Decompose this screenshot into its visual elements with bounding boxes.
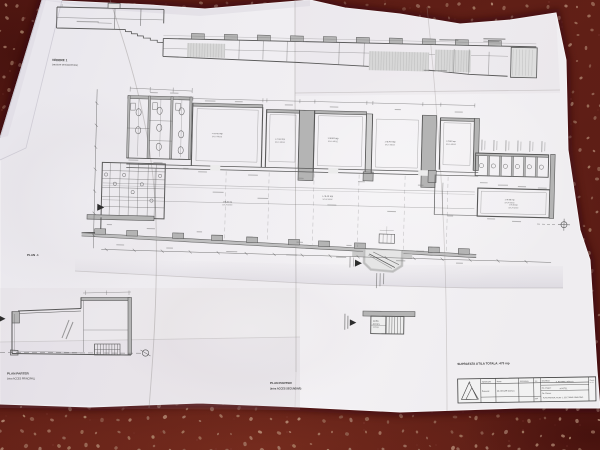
- svg-text:Specificatie: Specificatie: [482, 380, 491, 383]
- svg-text:Plansa: Plansa: [590, 380, 595, 382]
- svg-text:VEDERE 1: VEDERE 1: [52, 58, 68, 62]
- svg-text:178.40 mp: 178.40 mp: [212, 133, 224, 135]
- svg-text:178.40 mp: 178.40 mp: [384, 141, 396, 143]
- svg-text:Beneficiar:: Beneficiar:: [542, 380, 551, 382]
- svg-text:12.6mp: 12.6mp: [373, 327, 379, 329]
- svg-text:178.40 mp: 178.40 mp: [275, 139, 286, 141]
- svg-text:(intra ACCES SECUNDAR): (intra ACCES SECUNDAR): [270, 388, 301, 391]
- svg-text:Ms. ROGER Ionescu: Ms. ROGER Ionescu: [497, 390, 515, 392]
- svg-text:(intra ACCES PRINCIPAL): (intra ACCES PRINCIPAL): [7, 378, 35, 381]
- svg-text:GURA: GURA: [373, 320, 379, 323]
- svg-text:SALA MESE: SALA MESE: [275, 141, 286, 144]
- svg-text:SALA MESE: SALA MESE: [446, 143, 457, 146]
- svg-text:Proiectat: Proiectat: [482, 390, 490, 393]
- svg-text:Semnatura: Semnatura: [520, 380, 529, 383]
- svg-text:Ob. Proiect:: Ob. Proiect:: [542, 387, 552, 390]
- svg-text:178.40 mp: 178.40 mp: [446, 141, 456, 143]
- svg-text:178.40 mp: 178.40 mp: [223, 201, 233, 203]
- svg-text:Nume: Nume: [497, 381, 502, 383]
- svg-text:SALA MESE: SALA MESE: [212, 135, 223, 138]
- svg-text:Ob. Plansa:: Ob. Plansa:: [542, 393, 552, 395]
- svg-text:2016: 2016: [535, 398, 539, 400]
- svg-text:178.40 mp: 178.40 mp: [505, 199, 516, 201]
- svg-text:PLAN PARTER: PLAN PARTER: [270, 381, 293, 385]
- svg-text:SALA MESE: SALA MESE: [222, 203, 233, 206]
- svg-text:ACCES: ACCES: [373, 323, 381, 326]
- svg-text:SALA MESE: SALA MESE: [385, 143, 396, 146]
- svg-text:SALA MESE: SALA MESE: [322, 198, 333, 201]
- svg-text:SUPRAFATA UTILA TOTALA: 473 mp: SUPRAFATA UTILA TOTALA: 473 mp: [457, 361, 509, 366]
- svg-text:SALA MESE: SALA MESE: [328, 140, 339, 143]
- svg-text:HOSTEL: HOSTEL: [560, 388, 568, 390]
- svg-text:178.40 mp: 178.40 mp: [328, 138, 340, 140]
- svg-text:SALA MESE: SALA MESE: [508, 206, 519, 209]
- svg-text:PLAN -1: PLAN -1: [27, 253, 39, 257]
- svg-text:178.40 mp: 178.40 mp: [509, 204, 518, 206]
- svg-text:PLAN PARTER: PLAN PARTER: [7, 372, 30, 376]
- svg-text:178.40 mp: 178.40 mp: [322, 196, 334, 198]
- svg-text:S. ROTARIU Mihaela: S. ROTARIU Mihaela: [556, 380, 575, 383]
- svg-text:(sectiune semiplanificata): (sectiune semiplanificata): [52, 63, 78, 66]
